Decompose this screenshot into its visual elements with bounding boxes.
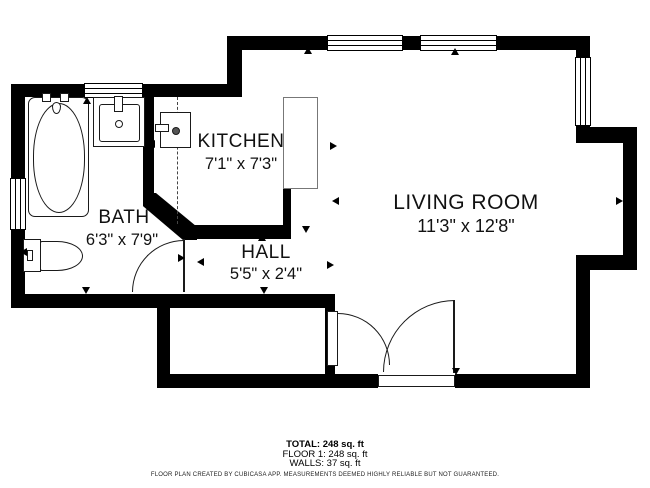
window-glass [84, 88, 143, 94]
measure-arrow-right-icon [327, 261, 334, 269]
measure-arrow-right-icon [616, 197, 623, 205]
measure-arrow-left-icon [148, 140, 155, 148]
window [575, 57, 591, 126]
wall [623, 127, 637, 270]
room-label-kitchen: KITCHEN [198, 131, 285, 153]
measure-arrow-left-icon [197, 258, 204, 266]
window [10, 178, 26, 230]
wall [576, 36, 590, 58]
measure-arrow-right-icon [330, 142, 337, 150]
measure-arrow-down-icon [260, 287, 268, 294]
room-label-hall: HALL [241, 242, 291, 264]
room-dimensions-hall: 5'5" x 2'4" [230, 265, 302, 284]
window-glass [420, 40, 497, 46]
wall [11, 84, 25, 178]
measure-arrow-up-icon [258, 234, 266, 241]
door-swing-arc [383, 300, 455, 372]
shower-head-icon [60, 93, 69, 102]
measure-arrow-right-icon [178, 254, 185, 262]
room-dimensions-bath: 6'3" x 7'9" [86, 231, 158, 250]
kitchen-counter [283, 97, 318, 189]
faucet-icon [114, 96, 123, 112]
window-glass [580, 57, 586, 126]
stove-handle [155, 124, 169, 132]
shower-head-icon [42, 93, 51, 102]
wall [157, 295, 170, 388]
measure-arrow-left-icon [332, 197, 339, 205]
wall [403, 36, 420, 50]
window-glass [327, 40, 403, 46]
measure-arrow-down-icon [302, 226, 310, 233]
measure-arrow-up-icon [451, 48, 459, 55]
bathtub-basin [33, 103, 85, 213]
measure-arrow-up-icon [83, 97, 91, 104]
window-glass [15, 178, 21, 230]
stove-knob-icon [172, 127, 180, 135]
window [327, 35, 403, 51]
measure-arrow-up-icon [304, 47, 312, 54]
wall [185, 225, 291, 239]
measure-arrow-down-icon [82, 287, 90, 294]
room-dimensions-kitchen: 7'1" x 7'3" [205, 155, 277, 174]
wall [227, 36, 327, 50]
room-dimensions-living-room: 11'3" x 12'8" [417, 216, 514, 237]
wall [576, 255, 590, 388]
room-label-bath: BATH [98, 207, 149, 229]
wall [455, 374, 590, 388]
room-label-living-room: LIVING ROOM [393, 191, 539, 215]
wall [283, 188, 291, 225]
toilet-bowl [40, 241, 83, 271]
wall [157, 374, 378, 388]
measure-arrow-down-icon [452, 368, 460, 375]
walls-area-text: WALLS: 37 sq. ft [0, 458, 650, 469]
disclaimer-text: FLOOR PLAN CREATED BY CUBICASA APP. MEAS… [0, 472, 650, 478]
floor-plan: KITCHEN 7'1" x 7'3" LIVING ROOM 11'3" x … [0, 0, 650, 488]
door-swing-arc [338, 313, 390, 365]
toilet-flush-button [27, 250, 33, 261]
door-leaf [327, 311, 338, 366]
drain-icon [115, 120, 123, 128]
wall [11, 294, 335, 308]
measure-arrow-left-icon [20, 248, 27, 256]
door-threshold [378, 375, 455, 387]
